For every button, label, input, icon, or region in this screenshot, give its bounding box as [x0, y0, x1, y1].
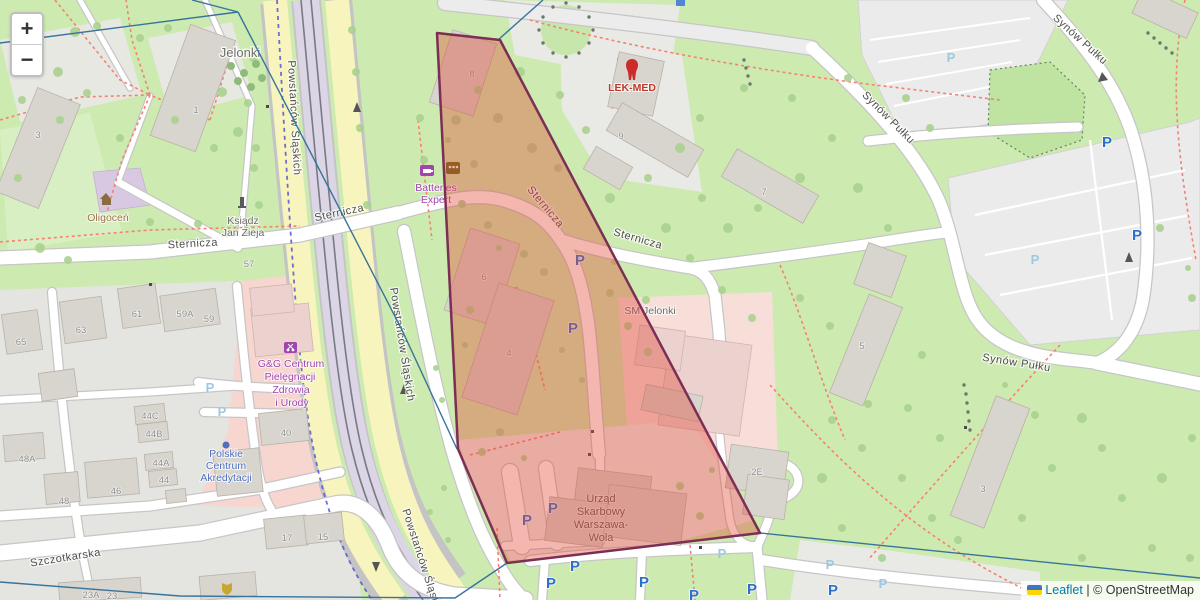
house-number-label: 44A — [153, 458, 171, 469]
house-number-label: 48 — [59, 496, 70, 507]
map-canvas[interactable]: Sternicza Sternicza Sternicza Sternicza … — [0, 0, 1200, 600]
battery-shop-icon — [420, 165, 434, 176]
beauty-shop-icon — [284, 342, 297, 353]
parking-icon: P — [747, 581, 757, 598]
poi-label-ksiadz: Jan Zieja — [222, 227, 265, 239]
map-viewport[interactable]: Sternicza Sternicza Sternicza Sternicza … — [0, 0, 1200, 600]
parking-icon: P — [1132, 227, 1142, 244]
transit-stop-icon — [676, 0, 685, 6]
house-number-label: 17 — [282, 533, 293, 544]
house-number-label: 23A — [83, 590, 101, 600]
house-number-label: 44B — [146, 429, 163, 440]
poi-label-pca: Akredytacji — [200, 472, 251, 484]
parking-icon: P — [218, 404, 227, 419]
poi-label-gg: G&G Centrum — [258, 358, 325, 370]
parking-icon: P — [947, 50, 956, 65]
house-number-label: 65 — [16, 337, 27, 348]
ukraine-flag-icon — [1027, 585, 1042, 595]
parking-icon: P — [879, 576, 888, 591]
house-number-label: 23 — [107, 591, 118, 600]
house-number-label: 59A — [177, 309, 195, 320]
leaflet-link[interactable]: Leaflet — [1045, 583, 1083, 597]
house-number-label: 9 — [618, 131, 623, 142]
parking-icon: P — [570, 558, 580, 575]
house-number-label: 61 — [132, 309, 143, 320]
parking-icon: P — [639, 574, 649, 591]
parking-icon: P — [826, 557, 835, 572]
house-number-label: 3 — [980, 484, 985, 495]
parking-icon: P — [206, 380, 215, 395]
poi-label-pca: Centrum — [206, 460, 247, 472]
parking-icon: P — [1102, 134, 1112, 151]
poi-label-gg: i Urody — [275, 397, 309, 409]
attribution-bar: Leaflet | © OpenStreetMap — [1021, 581, 1200, 600]
house-number-label: 57 — [244, 259, 255, 270]
parking-icon: P — [828, 582, 838, 599]
poi-label-gg: Zdrowia — [272, 384, 310, 396]
poi-label-pca: Polskie — [209, 448, 243, 460]
zoom-in-button[interactable]: + — [12, 14, 42, 44]
poi-label-oligocen: Oligoceń — [87, 212, 129, 224]
house-number-label: 40 — [281, 428, 292, 439]
attribution-separator: | — [1083, 583, 1093, 597]
house-number-label: 1 — [193, 105, 198, 116]
place-label-jelonki: Jelonki — [220, 45, 261, 60]
house-number-label: 5 — [859, 341, 864, 352]
house-number-label: 48A — [19, 454, 37, 465]
house-number-label: 44C — [141, 411, 159, 422]
poi-label-ksiadz: Ksiądz — [227, 215, 259, 227]
parking-icon: P — [689, 587, 699, 600]
poi-label-gg: Pielęgnacji — [265, 371, 316, 383]
parking-icon: P — [1031, 252, 1040, 267]
house-number-label: 46 — [111, 486, 122, 497]
house-number-label: 7 — [761, 187, 766, 198]
zoom-out-button[interactable]: − — [12, 44, 42, 75]
zoom-control: + − — [10, 12, 44, 77]
parking-icon: P — [546, 575, 556, 592]
house-number-label: 2E — [751, 467, 763, 478]
house-number-label: 59 — [204, 314, 215, 325]
house-number-label: 3 — [35, 130, 40, 141]
house-number-label: 44 — [159, 475, 170, 486]
house-number-label: 15 — [318, 532, 329, 543]
house-number-label: 63 — [76, 325, 87, 336]
osm-link[interactable]: © OpenStreetMap — [1093, 583, 1194, 597]
poi-label-lek-med: LEK-MED — [608, 82, 656, 94]
parking-icon: P — [718, 546, 727, 561]
